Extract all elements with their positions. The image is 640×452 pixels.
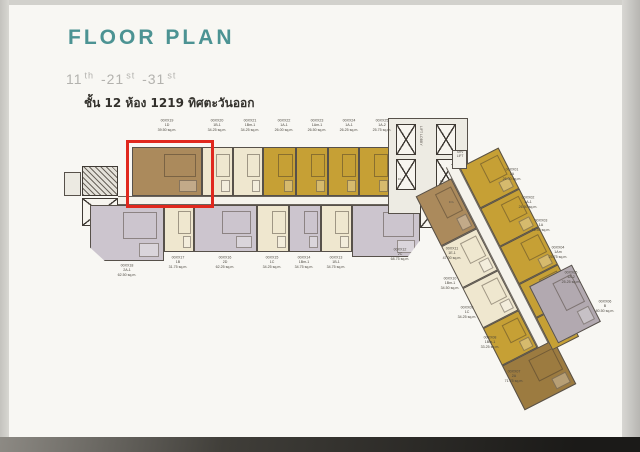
lift-lobby-label: LIFT LOBBY <box>419 126 422 146</box>
unit-label-00XX04: 00XX041Am25.75 sq.m. <box>539 246 577 260</box>
unit-label-00XX25: 00XX251A-225.75 sq.m. <box>363 119 401 133</box>
unit-label-00XX13: 00XX131B-134.75 sq.m. <box>317 256 355 270</box>
unit-00XX14 <box>289 205 321 252</box>
unit-label-00XX01: 00XX011A26.00 sq.m. <box>493 168 531 182</box>
es-label: ES. <box>449 201 454 205</box>
srv-lift-label: SRV LIFT <box>453 151 467 158</box>
unit-label-00XX09: 00XX091C34.25 sq.m. <box>448 306 486 320</box>
unit-label-00XX21: 00XX211Bm-134.25 sq.m. <box>231 119 269 133</box>
unit-label-00XX10: 00XX101Bm-134.50 sq.m. <box>431 277 469 291</box>
unit-label-00XX17: 00XX171B31.75 sq.m. <box>159 256 197 270</box>
unit-label-00XX12: 00XX122C68.75 sq.m. <box>381 248 419 262</box>
unit-label-00XX08: 00XX081Bm-133.25 sq.m. <box>471 336 509 350</box>
unit-label-00XX06: 00XX06B80.50 sq.m. <box>586 300 624 314</box>
unit-00XX17 <box>164 205 194 252</box>
floor-range-part: 11th <box>66 71 94 87</box>
photo-edge-bottom <box>0 437 640 452</box>
unit-label-00XX11: 00XX111E-147.00 sq.m. <box>433 247 471 261</box>
room-caption: ชั้น 12 ห้อง 1219 ทิศตะวันออก <box>84 94 255 113</box>
unit-00XX22 <box>263 147 296 196</box>
floor-range-part: -31st <box>142 71 176 87</box>
photo-edge-top <box>0 0 640 5</box>
photo-edge-right <box>622 0 640 452</box>
unit-label-00XX16: 00XX162D62.25 sq.m. <box>206 256 244 270</box>
unit-label-00XX03: 00XX031A26.50 sq.m. <box>522 219 560 233</box>
floor-range-part: -21st <box>101 71 135 87</box>
unit-label-00XX19: 00XX191D39.50 sq.m. <box>148 119 186 133</box>
el-label: EL. <box>440 180 445 184</box>
page-title: FLOOR PLAN <box>68 26 235 50</box>
unit-00XX21 <box>233 147 263 196</box>
photo-edge-left <box>0 0 9 445</box>
service-room <box>64 172 81 196</box>
el-label: EL. <box>398 178 403 182</box>
unit-label-00XX07: 00XX072A71.75 sq.m. <box>495 370 533 384</box>
unit-label-00XX02: 00XX021A-126.50 sq.m. <box>509 196 547 210</box>
unit-00XX13 <box>321 205 352 252</box>
stairs-west <box>82 166 118 196</box>
unit-00XX24 <box>328 147 359 196</box>
highlighted-unit-box <box>126 140 214 208</box>
unit-00XX16 <box>194 205 257 252</box>
unit-00XX18 <box>90 205 164 261</box>
unit-00XX15 <box>257 205 289 252</box>
unit-label-00XX18: 00XX182A-162.50 sq.m. <box>108 264 146 278</box>
unit-label-00XX05: 00XX051A-225.25 sq.m. <box>552 271 590 285</box>
unit-00XX25 <box>359 147 391 196</box>
floor-plan-photo: FLOOR PLAN 11th -21st -31st ชั้น 12 ห้อง… <box>0 0 640 452</box>
unit-00XX23 <box>296 147 328 196</box>
floor-range: 11th -21st -31st <box>66 70 178 87</box>
